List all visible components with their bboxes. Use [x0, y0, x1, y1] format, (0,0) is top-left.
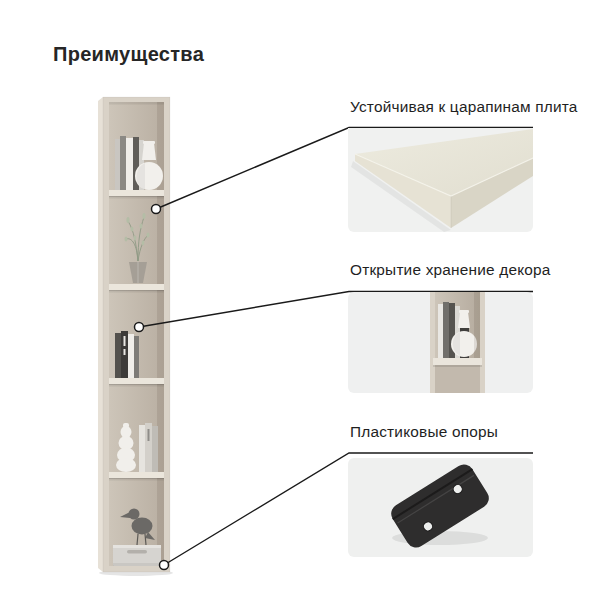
shelf-items-books [115, 331, 139, 378]
bookcase-illustration [96, 93, 178, 577]
advantages-infographic: Преимущества [0, 0, 610, 610]
plastic-foot-photo [348, 458, 533, 557]
feature-label-board: Устойчивая к царапинам плита [350, 98, 580, 116]
open-shelf-photo [348, 292, 533, 393]
feature-label-storage: Открытие хранение декора [350, 261, 580, 279]
feature-label-supports: Пластиковые опоры [350, 423, 580, 441]
board-corner-photo [348, 128, 533, 232]
bookcase-photo [96, 93, 178, 577]
page-title: Преимущества [53, 43, 204, 66]
